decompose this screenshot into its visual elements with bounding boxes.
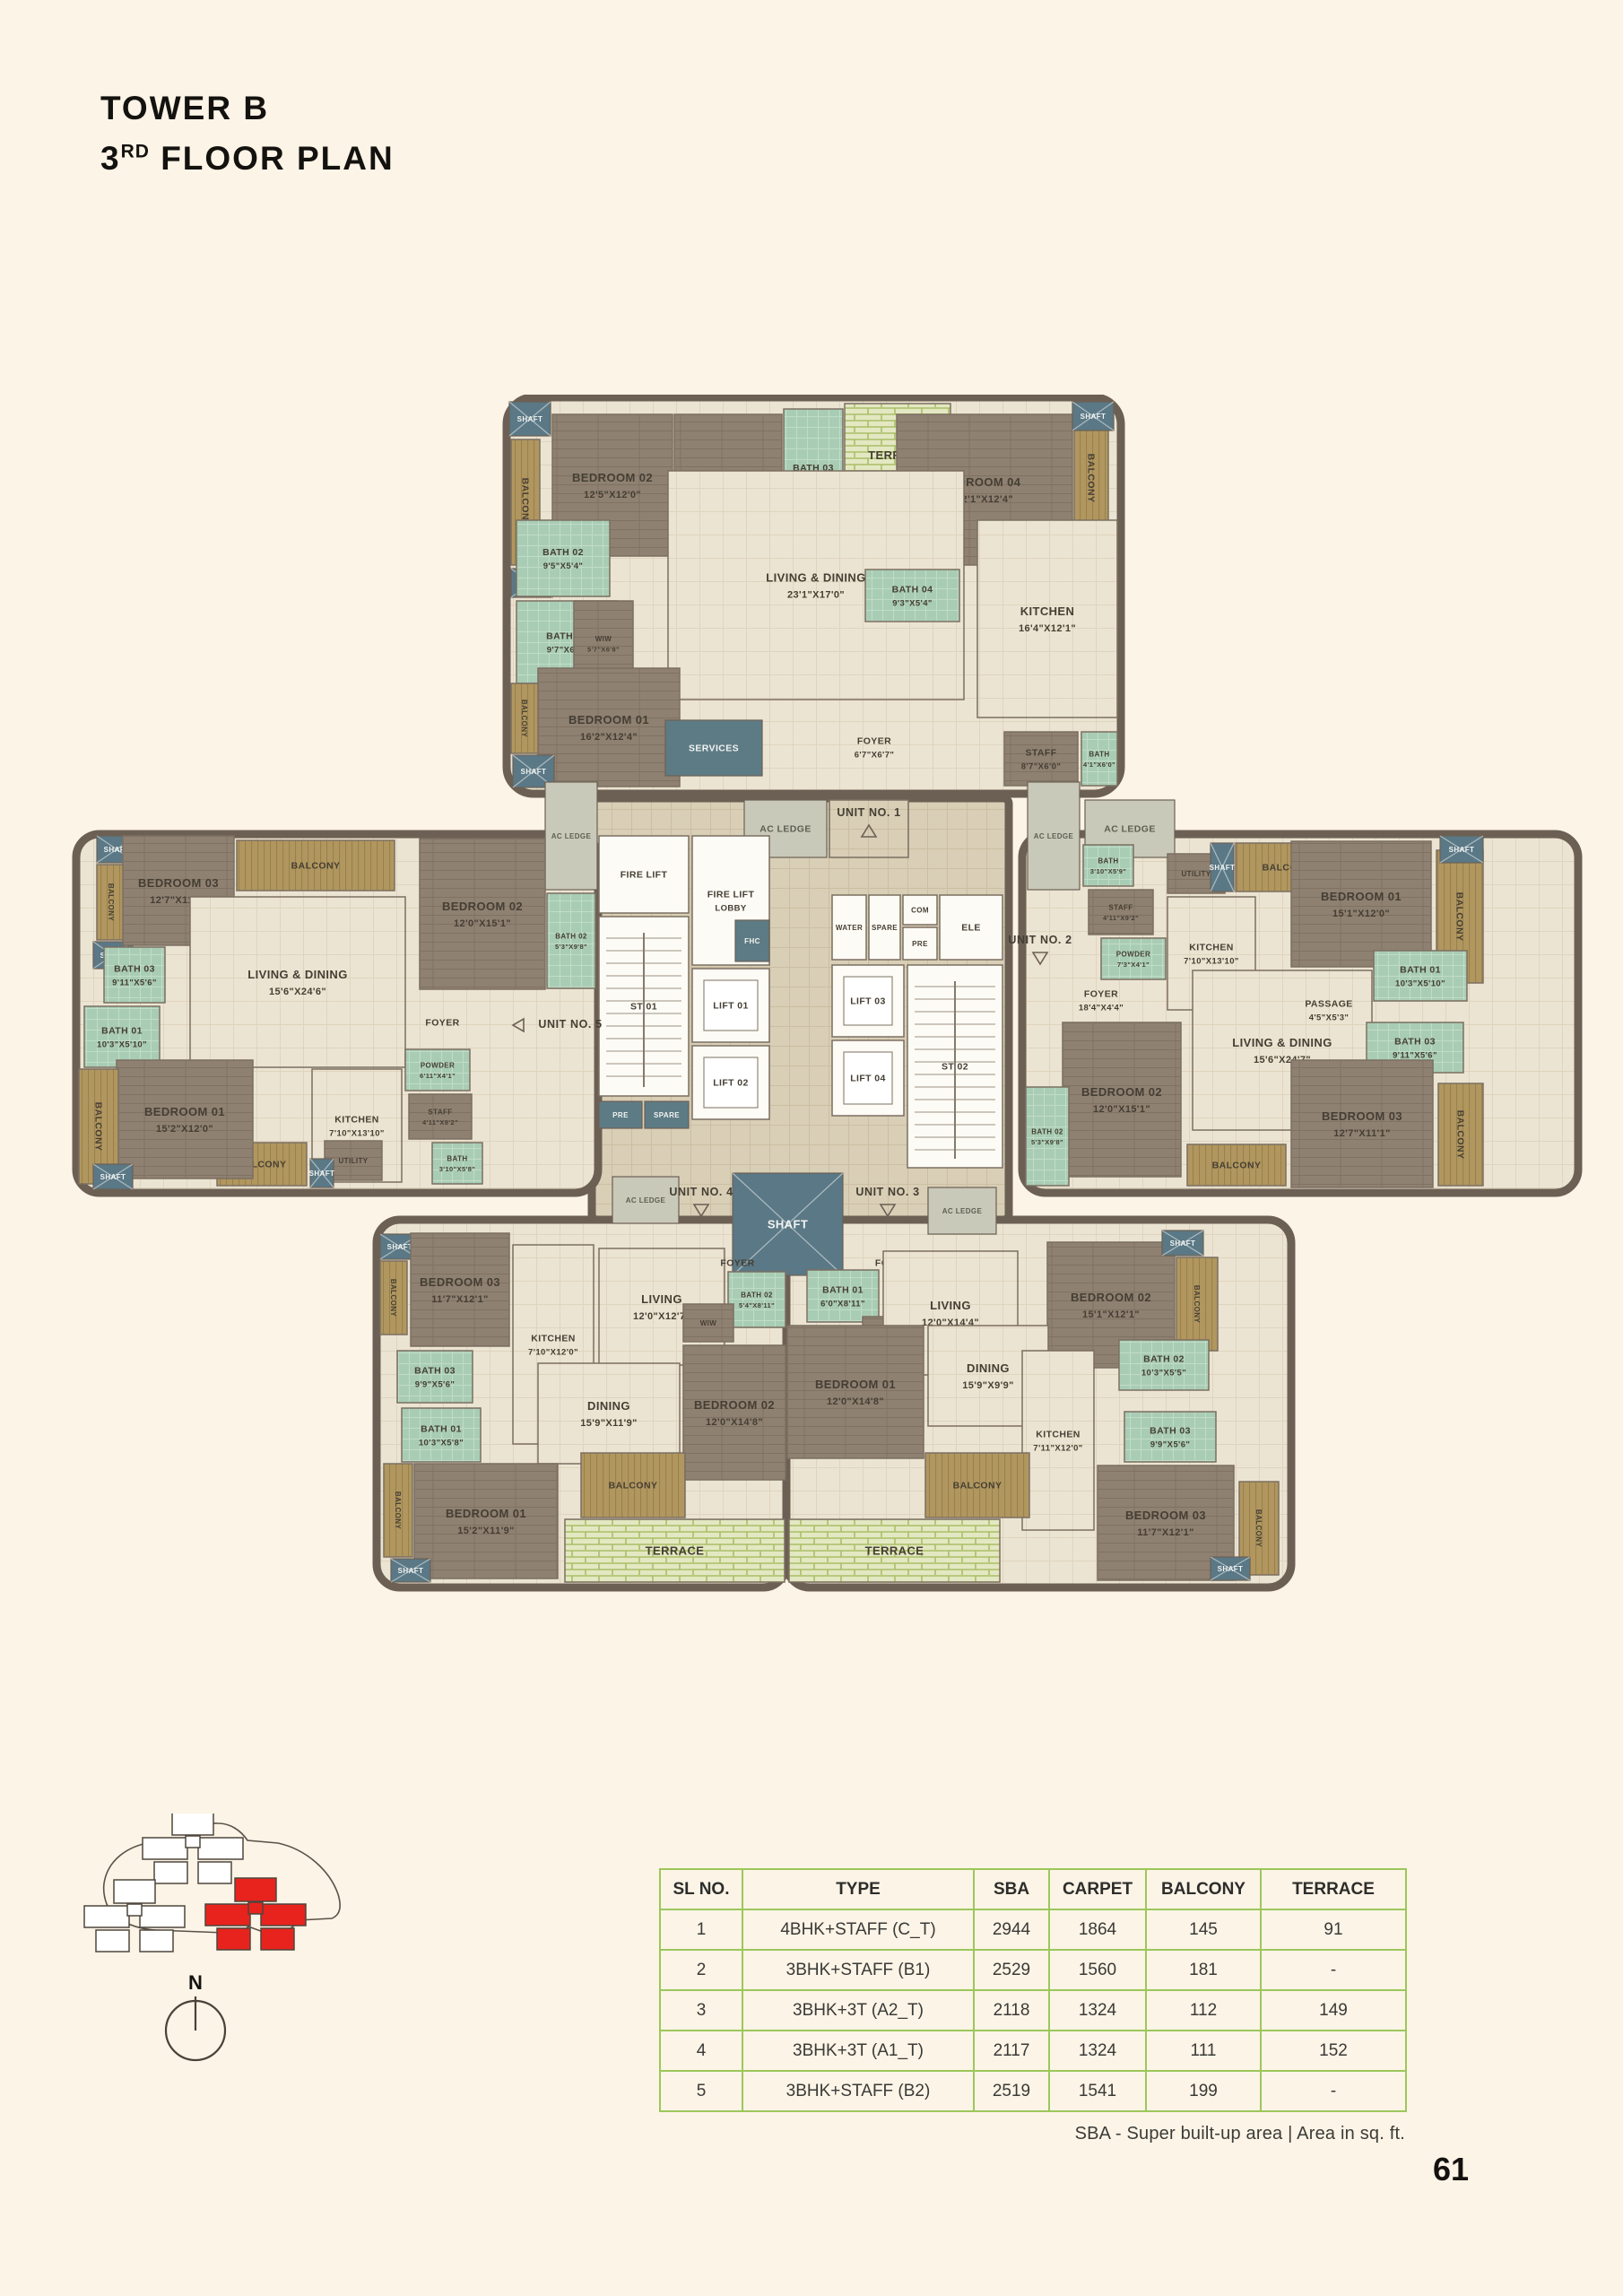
svg-text:BALCONY: BALCONY: [1454, 892, 1464, 942]
room-bedroom-02-85: BEDROOM 0212'0"X15'1": [1063, 1022, 1181, 1177]
svg-text:BALCONY: BALCONY: [1212, 1161, 1262, 1171]
room-bath-02-12: BATH 029'5"X5'4": [516, 520, 610, 596]
svg-text:SHAFT: SHAFT: [398, 1567, 424, 1575]
room-living-dining-56: LIVING & DINING15'6"X24'6": [190, 897, 405, 1067]
cell-r4-c3: 2117: [974, 2031, 1049, 2071]
room-bedroom-01-119: BEDROOM 0112'0"X14'8": [787, 1326, 924, 1458]
svg-text:ST 01: ST 01: [630, 1002, 657, 1013]
cell-r1-c3: 2944: [974, 1909, 1049, 1950]
svg-text:SHAFT: SHAFT: [100, 1173, 126, 1181]
svg-text:FOYER: FOYER: [425, 1018, 459, 1029]
svg-text:SHAFT: SHAFT: [517, 415, 543, 423]
room-shaft-105: SHAFT: [391, 1559, 430, 1582]
floor-title: 3RD FLOOR PLAN: [100, 140, 395, 178]
room-lift-04-44: LIFT 04: [832, 1040, 904, 1116]
room-wiw-98: WIW: [683, 1304, 733, 1342]
cell-r3-c3: 2118: [974, 1990, 1049, 2031]
ordinal-superscript: RD: [121, 142, 150, 162]
cell-r5-c5: 199: [1146, 2071, 1261, 2111]
cell-r2-c3: 2529: [974, 1950, 1049, 1990]
col-balcony: BALCONY: [1146, 1869, 1261, 1909]
room-shaft-0: SHAFT: [509, 402, 551, 436]
svg-text:BALCONY: BALCONY: [519, 478, 530, 527]
table-row: 53BHK+STAFF (B2)25191541199-: [660, 2071, 1406, 2111]
svg-text:BALCONY: BALCONY: [92, 1102, 103, 1152]
svg-text:ST 02: ST 02: [942, 1062, 968, 1073]
svg-text:BALCONY: BALCONY: [609, 1481, 658, 1492]
room-balcony-104: BALCONY: [384, 1464, 412, 1557]
cell-r4-c6: 152: [1261, 2031, 1406, 2071]
cell-r5-c2: 3BHK+STAFF (B2): [742, 2071, 974, 2111]
room-shaft-124: SHAFT: [1211, 1557, 1250, 1580]
cell-r1-c2: 4BHK+STAFF (C_T): [742, 1909, 974, 1950]
room-bedroom-01-18: BEDROOM 0116'2"X12'4": [538, 668, 680, 787]
table-row: 14BHK+STAFF (C_T)2944186414591: [660, 1909, 1406, 1950]
room-shaft-114: SHAFT: [1162, 1231, 1203, 1256]
room-spare-37: SPARE: [645, 1101, 689, 1128]
room-bedroom-02-51: BEDROOM 0212'0"X15'1": [420, 839, 545, 989]
svg-text:LIFT 01: LIFT 01: [713, 1001, 749, 1012]
cell-r3-c4: 1324: [1049, 1990, 1146, 2031]
room-bath-24: BATH4'1"X6'0": [1081, 732, 1117, 786]
sba-footnote: SBA - Super built-up area | Area in sq. …: [1075, 2124, 1405, 2144]
cell-r4-c1: 4: [660, 2031, 742, 2071]
key-plan: N: [72, 1813, 341, 2118]
svg-text:SHAFT: SHAFT: [521, 768, 547, 776]
room-bedroom-01-65: BEDROOM 0115'2"X12'0": [117, 1060, 253, 1178]
col-slno: SL NO.: [660, 1869, 742, 1909]
room-com-40: COM: [903, 895, 937, 925]
svg-text:UNIT NO. 2: UNIT NO. 2: [1008, 934, 1072, 946]
room-foyer-96: FOYER: [720, 1258, 754, 1269]
svg-text:SERVICES: SERVICES: [689, 744, 739, 754]
svg-text:AC LEDGE: AC LEDGE: [759, 824, 811, 835]
room-balcony-19: BALCONY: [511, 683, 538, 753]
room-balcony-47: BALCONY: [97, 865, 126, 940]
room-balcony-9: BALCONY: [1074, 420, 1108, 536]
svg-text:SPARE: SPARE: [654, 1111, 680, 1119]
col-terrace: TERRACE: [1261, 1869, 1406, 1909]
room-foyer-57: FOYER: [425, 1018, 459, 1029]
svg-text:TERRACE: TERRACE: [865, 1544, 924, 1558]
svg-text:PRE: PRE: [912, 940, 928, 948]
table-row: 33BHK+3T (A2_T)21181324112149: [660, 1990, 1406, 2031]
room-lift-03-43: LIFT 03: [832, 965, 904, 1037]
cell-r2-c6: -: [1261, 1950, 1406, 1990]
room-bedroom-01-77: BEDROOM 0115'1"X12'0": [1291, 841, 1431, 967]
room-water-38: WATER: [832, 895, 866, 960]
svg-text:BALCONY: BALCONY: [1085, 454, 1096, 503]
svg-text:FOYER: FOYER: [720, 1258, 754, 1269]
cell-r5-c4: 1541: [1049, 2071, 1146, 2111]
room-staff-60: STAFF4'11"X9'2": [409, 1094, 472, 1139]
room-spare-39: SPARE: [869, 895, 900, 960]
room-balcony-84: BALCONY: [1438, 1083, 1483, 1186]
cell-r4-c2: 3BHK+3T (A1_T): [742, 2031, 974, 2071]
svg-text:FHC: FHC: [744, 937, 760, 945]
svg-text:BALCONY: BALCONY: [953, 1481, 1002, 1492]
col-sba: SBA: [974, 1869, 1049, 1909]
svg-text:SHAFT: SHAFT: [768, 1218, 808, 1231]
room-ele-42: ELE: [940, 895, 1002, 960]
room-bath-02-86: BATH 025'3"X9'8": [1026, 1087, 1069, 1186]
cell-r5-c1: 5: [660, 2071, 742, 2111]
svg-text:LIFT 03: LIFT 03: [850, 996, 886, 1007]
tower-cluster-left: [84, 1880, 185, 1952]
room-services-21: SERVICES: [665, 720, 762, 776]
svg-text:BALCONY: BALCONY: [291, 861, 341, 872]
room-bedroom-02-99: BEDROOM 0212'0"X14'8": [683, 1345, 785, 1480]
page-number: 61: [1433, 2151, 1469, 2188]
svg-text:SHAFT: SHAFT: [1449, 846, 1475, 854]
cell-r2-c5: 181: [1146, 1950, 1261, 1990]
room-balcony-50: BALCONY: [237, 840, 395, 891]
room-terrace-107: TERRACE: [565, 1519, 785, 1582]
svg-text:TERRACE: TERRACE: [646, 1544, 705, 1558]
room-bath-01-101: BATH 0110'3"X5'8": [402, 1408, 481, 1462]
cell-r5-c6: -: [1261, 2071, 1406, 2111]
room-dining-102: DINING15'9"X11'9": [538, 1363, 680, 1464]
room-powder-59: POWDER6'11"X4'1": [405, 1049, 470, 1091]
svg-text:AC LEDGE: AC LEDGE: [626, 1196, 666, 1205]
room-bath-04-16: BATH 049'3"X5'4": [865, 570, 959, 622]
table-row: 43BHK+3T (A1_T)21171324111152: [660, 2031, 1406, 2071]
room-shaft-79: SHAFT: [1440, 836, 1483, 863]
cell-r2-c2: 3BHK+STAFF (B1): [742, 1950, 974, 1990]
room-kitchen-118: KITCHEN7'11"X12'0": [1022, 1351, 1094, 1530]
room-staff-23: STAFF8'7"X6'0": [1004, 732, 1078, 786]
north-label: N: [188, 1971, 203, 1994]
room-lift-01-34: LIFT 01: [692, 969, 769, 1042]
cell-r2-c4: 1560: [1049, 1950, 1146, 1990]
svg-text:AC LEDGE: AC LEDGE: [1104, 824, 1155, 835]
svg-text:BALCONY: BALCONY: [107, 883, 115, 922]
svg-text:UNIT NO. 3: UNIT NO. 3: [855, 1186, 919, 1198]
table-header-row: SL NO. TYPE SBA CARPET BALCONY TERRACE: [660, 1869, 1406, 1909]
svg-text:ELE: ELE: [961, 923, 981, 934]
svg-text:UTILITY: UTILITY: [338, 1157, 368, 1165]
cell-r1-c5: 145: [1146, 1909, 1261, 1950]
room-pre-36: PRE: [599, 1101, 642, 1128]
cell-r1-c6: 91: [1261, 1909, 1406, 1950]
room-bedroom-03-83: BEDROOM 0312'7"X11'1": [1291, 1060, 1433, 1187]
cell-r3-c2: 3BHK+3T (A2_T): [742, 1990, 974, 2031]
room-st-01-33: ST 01: [599, 917, 689, 1096]
svg-text:LIFT 04: LIFT 04: [850, 1074, 886, 1084]
area-table: SL NO. TYPE SBA CARPET BALCONY TERRACE 1…: [659, 1868, 1407, 2112]
room-bath-68: BATH3'10"X5'9": [1083, 845, 1133, 886]
cell-r4-c4: 1324: [1049, 2031, 1146, 2071]
room-ac-ledge-25: AC LEDGE: [545, 782, 597, 890]
room-bath-01-54: BATH 0110'3"X5'10": [84, 1006, 160, 1067]
room-balcony-113: BALCONY: [1176, 1257, 1218, 1351]
room-staff-69: STAFF4'11"X9'2": [1089, 890, 1153, 935]
svg-text:UNIT NO. 4: UNIT NO. 4: [669, 1186, 733, 1198]
room-ac-ledge-29: AC LEDGE: [1028, 782, 1080, 890]
svg-text:SHAFT: SHAFT: [309, 1170, 335, 1178]
svg-text:AC LEDGE: AC LEDGE: [1034, 832, 1074, 840]
svg-text:BALCONY: BALCONY: [389, 1279, 397, 1318]
room-bath-03-53: BATH 039'11"X5'6": [104, 947, 165, 1003]
cell-r3-c1: 3: [660, 1990, 742, 2031]
tower-b-highlight: [205, 1878, 306, 1950]
room-bedroom-03-93: BEDROOM 0311'7"X12'1": [411, 1233, 509, 1346]
room-balcony-106: BALCONY: [581, 1453, 685, 1518]
room-balcony-122: BALCONY: [925, 1453, 1029, 1518]
room-shaft-73: SHAFT: [1210, 843, 1236, 891]
svg-text:UNIT NO. 1: UNIT NO. 1: [837, 806, 900, 819]
cell-r1-c4: 1864: [1049, 1909, 1146, 1950]
floor-plan: SHAFTBALCONYSHAFTBEDROOM 0212'5"X12'0"BE…: [0, 395, 1623, 1650]
svg-text:COM: COM: [911, 906, 929, 914]
room-balcony-87: BALCONY: [1187, 1144, 1286, 1186]
room-bath-02-97: BATH 025'4"X8'11": [728, 1272, 785, 1327]
room-ac-ledge-89: AC LEDGE: [612, 1177, 679, 1223]
col-carpet: CARPET: [1049, 1869, 1146, 1909]
svg-text:AC LEDGE: AC LEDGE: [551, 832, 592, 840]
svg-text:SHAFT: SHAFT: [1210, 864, 1236, 872]
svg-text:SHAFT: SHAFT: [387, 1243, 413, 1251]
room-balcony-92: BALCONY: [380, 1261, 407, 1335]
cell-r2-c1: 2: [660, 1950, 742, 1990]
room-shaft-67: SHAFT: [93, 1164, 133, 1189]
svg-text:WIW: WIW: [700, 1319, 717, 1327]
svg-text:FIRE LIFT: FIRE LIFT: [621, 870, 668, 881]
north-compass-icon: [166, 1996, 225, 2060]
room-lift-02-35: LIFT 02: [692, 1046, 769, 1119]
svg-text:BALCONY: BALCONY: [1454, 1110, 1465, 1160]
room-shaft-10: SHAFT: [1072, 402, 1114, 430]
room-ac-ledge-90: AC LEDGE: [928, 1187, 996, 1234]
col-type: TYPE: [742, 1869, 974, 1909]
svg-text:SHAFT: SHAFT: [1081, 413, 1107, 421]
room-shaft-64: SHAFT: [309, 1159, 335, 1187]
room-bath-61: BATH3'10"X5'8": [432, 1143, 482, 1184]
room-kitchen-17: KITCHEN16'4"X12'1": [977, 520, 1117, 717]
table-row: 23BHK+STAFF (B1)25291560181-: [660, 1950, 1406, 1990]
cell-r1-c1: 1: [660, 1909, 742, 1950]
cell-r5-c3: 2519: [974, 2071, 1049, 2111]
page-title: TOWER B 3RD FLOOR PLAN: [100, 90, 395, 178]
svg-text:WATER: WATER: [836, 924, 863, 932]
room-fire-lift-30: FIRE LIFT: [599, 836, 689, 913]
cell-r4-c5: 111: [1146, 2031, 1261, 2071]
tower-cluster-top: [143, 1813, 243, 1883]
cell-r3-c6: 149: [1261, 1990, 1406, 2031]
room-bath-01-81: BATH 0110'3"X5'10": [1374, 951, 1467, 1001]
svg-text:BALCONY: BALCONY: [520, 700, 528, 738]
room-bath-01-108: BATH 016'0"X8'11": [807, 1270, 879, 1322]
svg-text:UNIT NO. 5: UNIT NO. 5: [538, 1018, 602, 1031]
svg-text:LIFT 02: LIFT 02: [713, 1078, 749, 1089]
room-powder-70: POWDER7'3"X4'1": [1101, 938, 1166, 979]
room-bath-03-100: BATH 039'9"X5'6": [397, 1351, 473, 1403]
room-bath-03-116: BATH 039'9"X5'6": [1124, 1412, 1216, 1462]
svg-text:BALCONY: BALCONY: [394, 1492, 402, 1530]
room-pre-41: PRE: [903, 927, 937, 960]
svg-text:UTILITY: UTILITY: [1181, 870, 1211, 878]
room-terrace-123: TERRACE: [789, 1519, 1000, 1582]
room-fhc-32: FHC: [735, 920, 769, 961]
room-bedroom-01-103: BEDROOM 0115'2"X11'9": [414, 1464, 558, 1578]
cell-r3-c5: 112: [1146, 1990, 1261, 2031]
svg-text:SHAFT: SHAFT: [1218, 1565, 1244, 1573]
svg-text:SPARE: SPARE: [872, 924, 898, 932]
svg-text:AC LEDGE: AC LEDGE: [942, 1207, 983, 1215]
svg-text:PRE: PRE: [612, 1111, 629, 1119]
svg-text:SHAFT: SHAFT: [1170, 1239, 1196, 1248]
room-bath-02-115: BATH 0210'3"X5'5": [1119, 1340, 1209, 1390]
svg-text:BALCONY: BALCONY: [1254, 1509, 1263, 1548]
room-bath-02-52: BATH 025'3"X9'8": [547, 893, 595, 988]
room-st-02-45: ST 02: [907, 965, 1002, 1168]
tower-title: TOWER B: [100, 90, 395, 127]
svg-text:BALCONY: BALCONY: [1193, 1285, 1201, 1324]
